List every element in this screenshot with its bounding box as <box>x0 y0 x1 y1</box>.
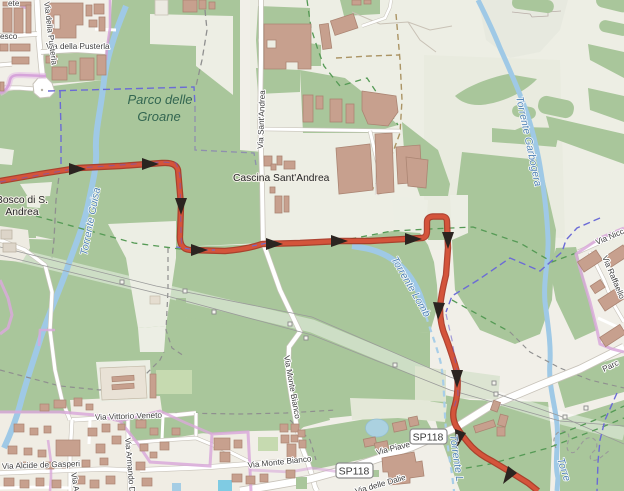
svg-text:SP118: SP118 <box>339 466 370 478</box>
svg-text:Parco delle: Parco delle <box>127 92 192 107</box>
svg-text:SP118: SP118 <box>413 432 444 444</box>
svg-text:Bosco di S.: Bosco di S. <box>0 195 48 206</box>
svg-text:esco: esco <box>0 32 18 41</box>
svg-text:Groane: Groane <box>137 109 180 124</box>
svg-text:ete: ete <box>8 0 20 8</box>
svg-text:Andrea: Andrea <box>5 207 38 218</box>
svg-text:Cascina Sant'Andrea: Cascina Sant'Andrea <box>233 173 330 184</box>
